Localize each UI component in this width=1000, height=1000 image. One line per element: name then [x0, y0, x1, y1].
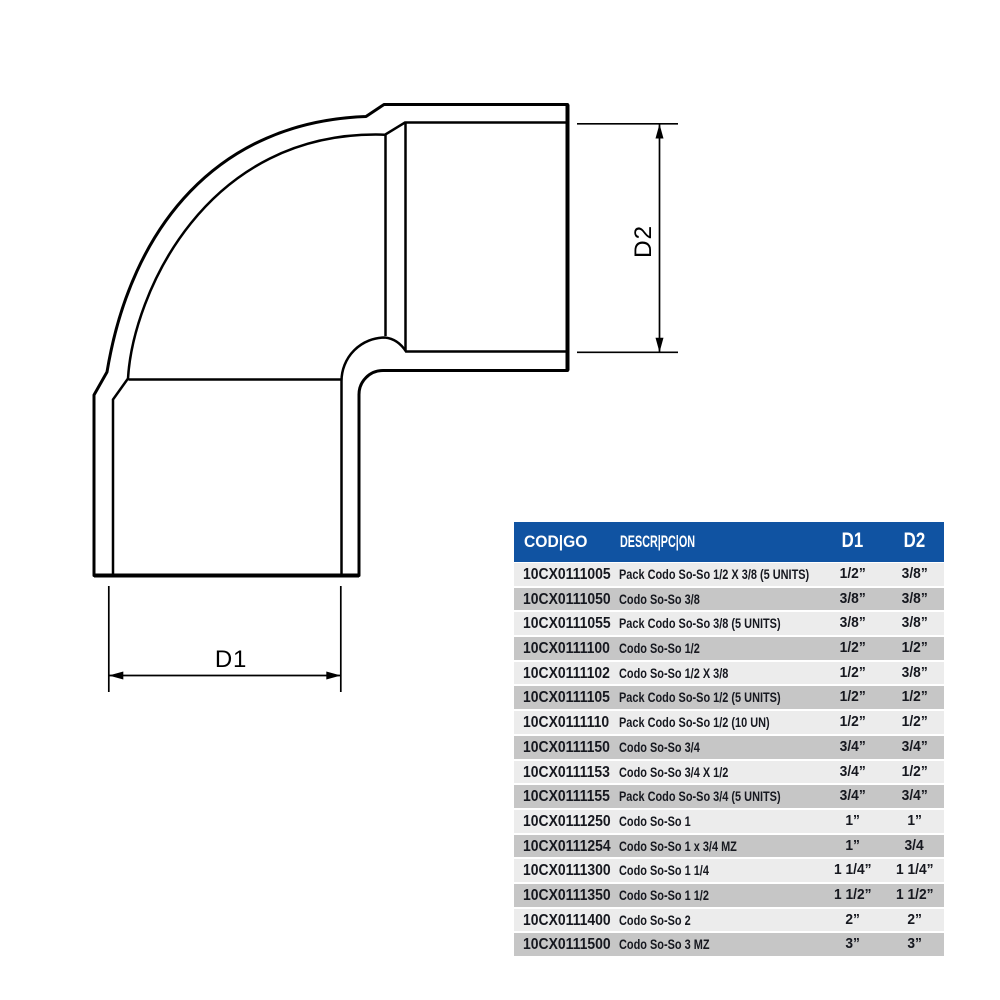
svg-text:D2: D2: [630, 225, 657, 258]
svg-text:D1: D1: [215, 646, 247, 673]
